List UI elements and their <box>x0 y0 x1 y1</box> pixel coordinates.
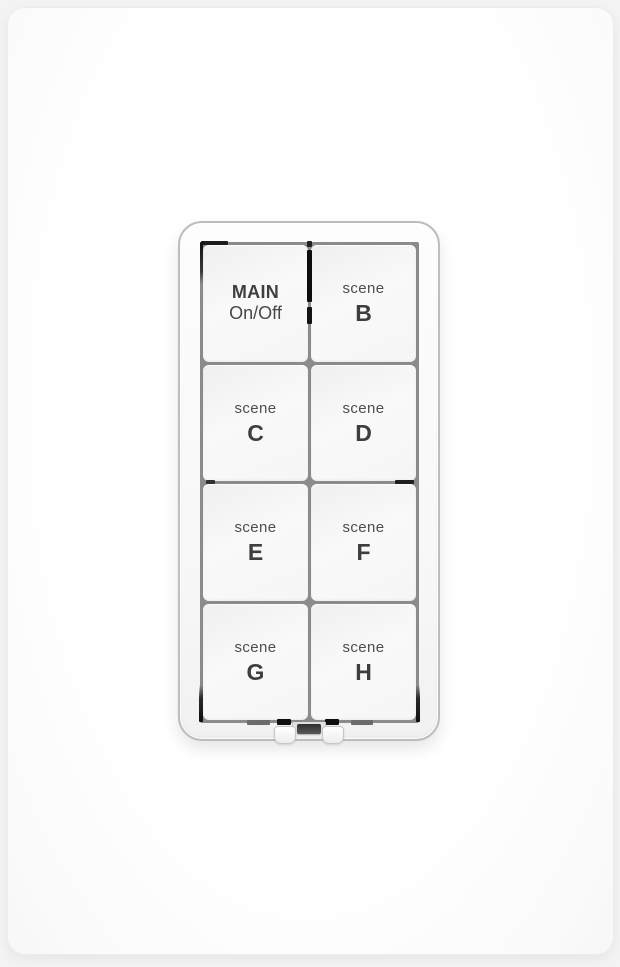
frame-shadow-row-divider-right <box>395 480 414 484</box>
keypad-button-scene-e[interactable]: scene E <box>203 484 308 601</box>
button-label-top: scene <box>234 400 276 417</box>
frame-shadow-bottom-right <box>416 685 420 722</box>
button-label-top: MAIN <box>232 282 279 303</box>
keypad-button-scene-h[interactable]: scene H <box>311 604 416 721</box>
button-label-letter: H <box>355 659 372 685</box>
keypad-button-scene-d[interactable]: scene D <box>311 365 416 482</box>
frame-shadow-bottom-dash <box>247 720 270 725</box>
frame-shadow-top-left-horizontal <box>201 241 228 245</box>
keypad-button-scene-g[interactable]: scene G <box>203 604 308 721</box>
button-label-letter: F <box>356 539 370 565</box>
button-label-top: scene <box>342 280 384 297</box>
keypad-button-scene-b[interactable]: scene B <box>311 245 416 362</box>
button-label-letter: C <box>247 420 264 446</box>
air-gap-tab-left <box>274 726 296 744</box>
button-label-letter: G <box>247 659 265 685</box>
frame-shadow-bottom-dash <box>277 719 291 725</box>
frame-shadow-bottom-dash <box>325 719 339 725</box>
button-label-letter: E <box>248 539 263 565</box>
indicator-slot-notch <box>307 241 312 247</box>
air-gap-tab-right <box>322 726 344 744</box>
button-label-letter: B <box>355 300 372 326</box>
product-photo-stage: MAIN On/Off scene B scene C scene D scen… <box>0 0 620 967</box>
button-label-top: scene <box>342 400 384 417</box>
keypad-button-main-on-off[interactable]: MAIN On/Off <box>203 245 308 362</box>
frame-shadow-top-left-vertical <box>200 242 203 284</box>
indicator-slot-lower <box>307 307 312 324</box>
button-label-top: scene <box>342 639 384 656</box>
keypad-button-scene-f[interactable]: scene F <box>311 484 416 601</box>
indicator-slot <box>307 250 312 302</box>
button-label-top: scene <box>342 519 384 536</box>
frame-shadow-row-divider-left <box>206 480 215 484</box>
keypad-button-scene-c[interactable]: scene C <box>203 365 308 482</box>
button-label-top: scene <box>234 519 276 536</box>
button-label-bottom: On/Off <box>229 303 282 324</box>
frame-shadow-bottom-left <box>199 685 203 722</box>
frame-shadow-bottom-dash <box>351 720 373 725</box>
button-label-letter: D <box>355 420 372 446</box>
set-button[interactable] <box>297 724 321 734</box>
button-label-top: scene <box>234 639 276 656</box>
